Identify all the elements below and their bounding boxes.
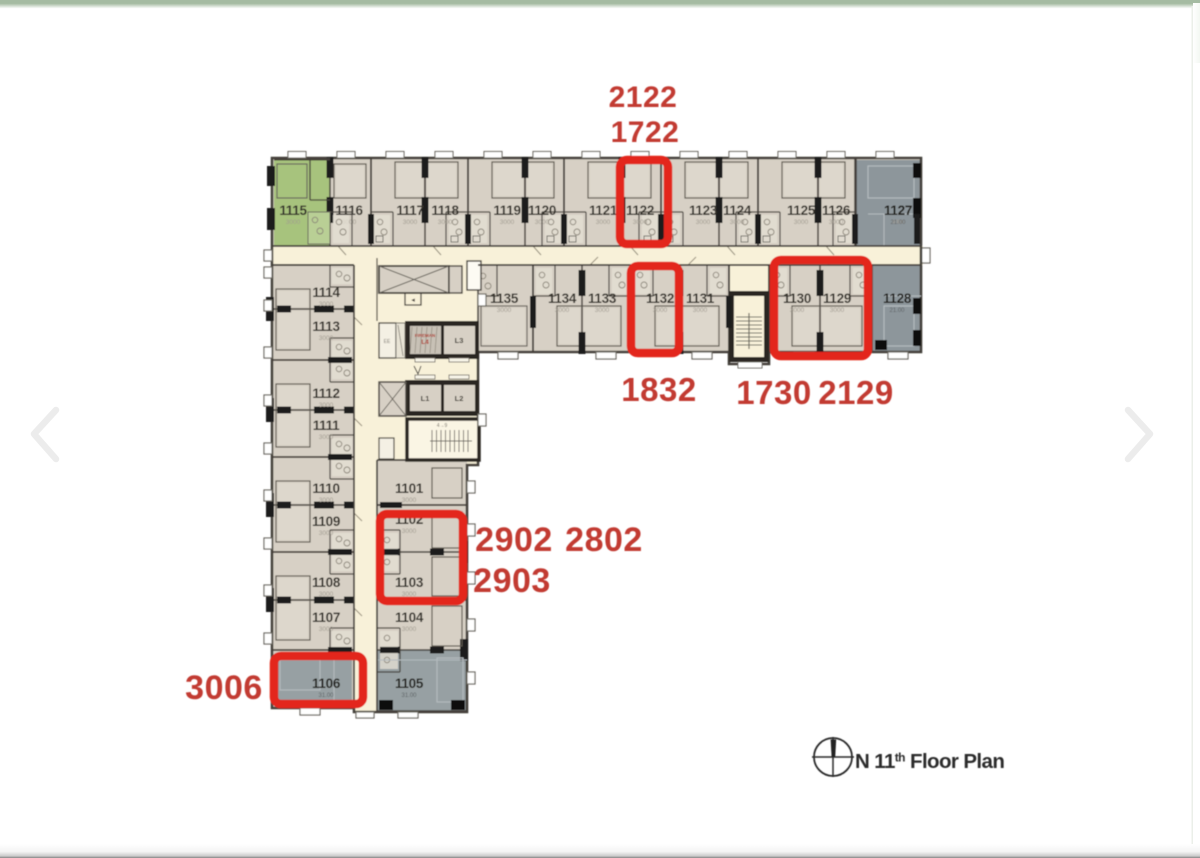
svg-text:1832: 1832 <box>621 371 696 408</box>
svg-text:1133: 1133 <box>588 291 617 306</box>
svg-text:1115: 1115 <box>279 203 307 218</box>
svg-text:3000: 3000 <box>286 219 301 226</box>
svg-text:2802: 2802 <box>565 521 643 559</box>
svg-text:2129: 2129 <box>818 374 893 411</box>
svg-text:3000: 3000 <box>829 219 844 226</box>
svg-text:3000: 3000 <box>319 591 334 598</box>
svg-text:3000: 3000 <box>555 307 570 314</box>
svg-text:L1: L1 <box>421 394 430 403</box>
svg-text:1108: 1108 <box>312 575 341 590</box>
svg-text:1126: 1126 <box>822 203 851 218</box>
svg-text:3000: 3000 <box>535 219 550 226</box>
svg-text:1121: 1121 <box>589 203 618 218</box>
svg-text:1104: 1104 <box>395 610 424 625</box>
svg-text:3000: 3000 <box>319 530 334 537</box>
svg-text:1132: 1132 <box>646 291 674 306</box>
svg-text:N 11th Floor Plan: N 11th Floor Plan <box>855 750 1004 773</box>
svg-text:1103: 1103 <box>395 575 424 590</box>
svg-text:1124: 1124 <box>723 203 752 218</box>
svg-text:3000: 3000 <box>319 402 334 409</box>
svg-text:3000: 3000 <box>633 219 648 226</box>
svg-text:1730: 1730 <box>736 374 811 411</box>
svg-text:1722: 1722 <box>611 116 680 149</box>
svg-text:3000: 3000 <box>402 626 417 633</box>
svg-text:1135: 1135 <box>490 291 519 306</box>
svg-text:3000: 3000 <box>500 219 515 226</box>
svg-text:3000: 3000 <box>653 307 668 314</box>
svg-text:1118: 1118 <box>431 203 459 218</box>
svg-text:3000: 3000 <box>830 307 845 314</box>
svg-text:3000: 3000 <box>595 307 610 314</box>
svg-text:EE: EE <box>384 339 391 345</box>
svg-text:3000: 3000 <box>403 219 418 226</box>
svg-text:1101: 1101 <box>395 481 424 496</box>
svg-text:1110: 1110 <box>312 481 339 496</box>
svg-text:3000: 3000 <box>497 307 512 314</box>
svg-text:2122: 2122 <box>609 81 678 114</box>
svg-text:1123: 1123 <box>689 203 718 218</box>
svg-text:1122: 1122 <box>626 203 654 218</box>
svg-text:3000: 3000 <box>402 528 417 535</box>
svg-text:3000: 3000 <box>790 307 805 314</box>
svg-text:1119: 1119 <box>493 203 520 218</box>
svg-text:1105: 1105 <box>395 676 424 691</box>
svg-text:1125: 1125 <box>787 203 816 218</box>
svg-text:3000: 3000 <box>794 219 809 226</box>
svg-text:1129: 1129 <box>823 291 851 306</box>
svg-text:3000: 3000 <box>696 219 711 226</box>
svg-text:3000: 3000 <box>319 434 334 441</box>
svg-text:1114: 1114 <box>312 285 340 300</box>
svg-text:◂: ◂ <box>411 297 415 304</box>
svg-text:3000: 3000 <box>402 497 417 504</box>
svg-text:3000: 3000 <box>693 307 708 314</box>
svg-text:2902: 2902 <box>475 521 553 559</box>
svg-text:31.00: 31.00 <box>318 693 334 699</box>
svg-text:3000: 3000 <box>730 219 745 226</box>
svg-text:1131: 1131 <box>686 291 715 306</box>
svg-text:1127: 1127 <box>884 203 912 218</box>
svg-text:L2: L2 <box>455 394 464 403</box>
svg-text:3000: 3000 <box>438 219 453 226</box>
svg-text:2903: 2903 <box>473 562 551 600</box>
svg-text:1113: 1113 <box>312 319 340 334</box>
svg-text:1130: 1130 <box>783 291 811 306</box>
svg-text:L3: L3 <box>455 336 464 345</box>
svg-text:1134: 1134 <box>548 291 577 306</box>
svg-text:1112: 1112 <box>312 386 339 401</box>
svg-text:21.00: 21.00 <box>889 308 905 314</box>
svg-text:1111: 1111 <box>313 418 340 433</box>
svg-text:3000: 3000 <box>319 335 334 342</box>
svg-text:L4: L4 <box>421 339 429 346</box>
svg-text:3000: 3000 <box>596 219 611 226</box>
svg-text:21.00: 21.00 <box>890 220 906 226</box>
svg-text:3006: 3006 <box>185 669 263 707</box>
svg-text:1120: 1120 <box>528 203 556 218</box>
svg-text:31.00: 31.00 <box>401 693 417 699</box>
svg-text:1106: 1106 <box>312 676 341 691</box>
svg-text:1117: 1117 <box>396 203 423 218</box>
svg-text:3000: 3000 <box>319 626 334 633</box>
svg-text:1107: 1107 <box>312 610 340 625</box>
svg-text:3000: 3000 <box>319 301 334 308</box>
svg-text:FIREMAN: FIREMAN <box>415 333 436 338</box>
svg-text:1128: 1128 <box>883 291 912 306</box>
svg-text:1109: 1109 <box>312 514 340 529</box>
svg-text:4→9: 4→9 <box>437 423 448 429</box>
svg-text:3000: 3000 <box>319 497 334 504</box>
